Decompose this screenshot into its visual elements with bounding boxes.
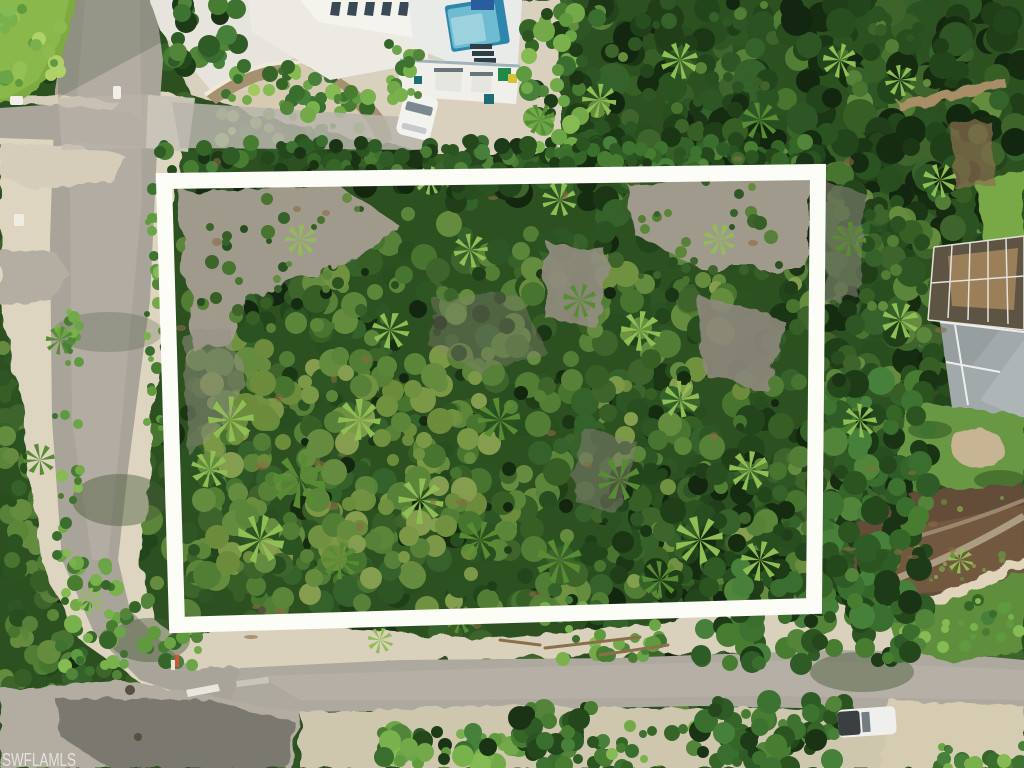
svg-text:SWFLAMLS: SWFLAMLS [2, 750, 76, 768]
